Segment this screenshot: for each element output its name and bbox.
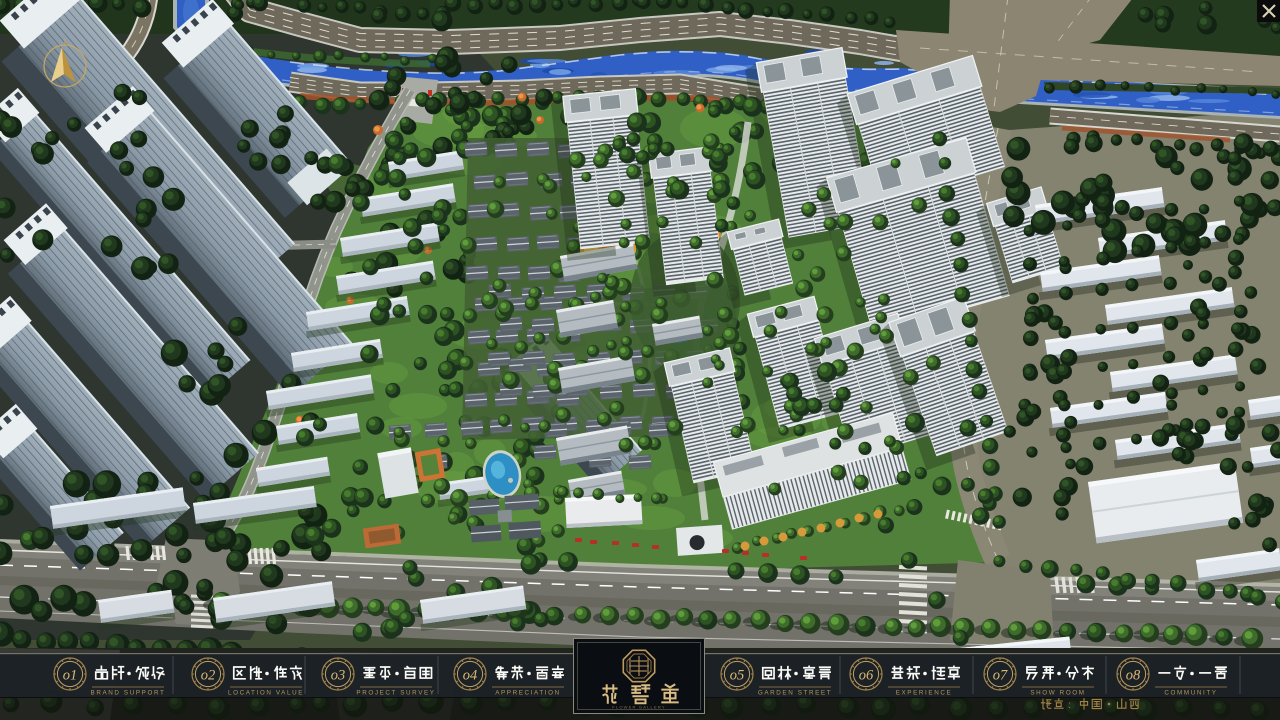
svg-text:o6: o6: [859, 668, 874, 684]
svg-text:APPRECIATION: APPRECIATION: [495, 690, 561, 697]
svg-text:COMMUNITY: COMMUNITY: [1164, 690, 1217, 697]
svg-text:o1: o1: [63, 668, 78, 684]
svg-text:o7: o7: [993, 668, 1008, 684]
svg-text:PROJECT SURVEY: PROJECT SURVEY: [356, 690, 435, 697]
svg-text:LOCATION VALUE: LOCATION VALUE: [228, 690, 304, 697]
svg-text::: :: [1068, 700, 1071, 711]
svg-text:o3: o3: [331, 668, 346, 684]
svg-text:o4: o4: [463, 668, 478, 684]
svg-text:o5: o5: [730, 668, 745, 684]
svg-text:BRAND SUPPORT: BRAND SUPPORT: [91, 690, 166, 697]
svg-text:FLOWER GALLERY: FLOWER GALLERY: [612, 705, 665, 710]
svg-text:SHOW ROOM: SHOW ROOM: [1030, 690, 1085, 697]
svg-text:o8: o8: [1126, 668, 1141, 684]
svg-text:o2: o2: [201, 668, 216, 684]
svg-text:EXPERIENCE: EXPERIENCE: [896, 690, 953, 697]
svg-text:GARDEN STREET: GARDEN STREET: [758, 690, 832, 697]
